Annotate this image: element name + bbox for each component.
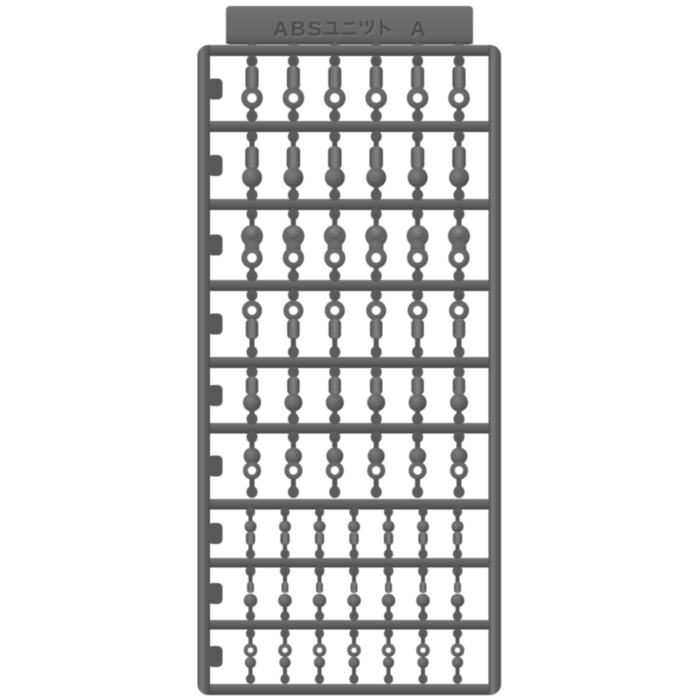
svg-text:A: A	[410, 17, 426, 41]
svg-text:ABS: ABS	[273, 17, 324, 41]
